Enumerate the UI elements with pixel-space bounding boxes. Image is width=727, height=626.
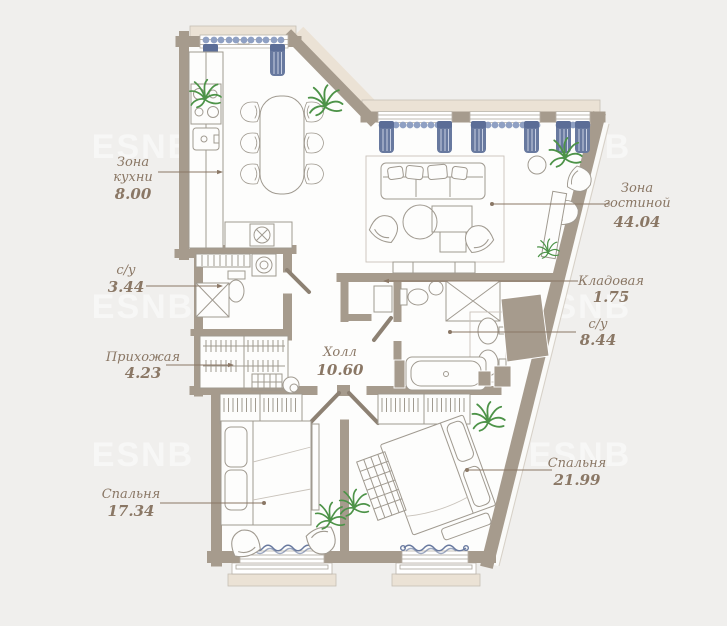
room-area: 8.00 — [115, 185, 152, 203]
room-name: Прихожая — [105, 350, 180, 365]
shower — [446, 281, 500, 321]
round-table — [528, 156, 546, 174]
floorplan-svg: ESNB ESNB ESNB ESNB ESNB ESNB — [0, 0, 727, 626]
room-area: 10.60 — [317, 361, 365, 379]
floorplan-page: ESNB ESNB ESNB ESNB ESNB ESNB — [0, 0, 727, 626]
bath-cabinet — [394, 360, 405, 388]
room-area: 4.23 — [125, 364, 162, 382]
bathtub — [406, 357, 486, 390]
room-name: Спальня — [102, 487, 161, 502]
room-name: Зона — [621, 181, 653, 196]
bath-stand — [494, 366, 511, 387]
room-area: 8.44 — [580, 331, 617, 349]
room-name: Холл — [322, 345, 357, 360]
laundry-basket — [478, 371, 491, 386]
washing-machine — [252, 254, 276, 276]
room-name: с/у — [588, 317, 608, 332]
kitchen-sink — [193, 128, 219, 150]
sofa — [381, 163, 485, 199]
bath-shelf — [196, 254, 250, 267]
bed — [221, 421, 311, 525]
tv-console — [393, 262, 475, 273]
shower — [196, 283, 229, 317]
room-name: Спальня — [548, 456, 607, 471]
room-name: Зона — [117, 155, 149, 170]
room-area: 3.44 — [108, 278, 145, 296]
wardrobe — [220, 394, 302, 424]
room-area: 44.04 — [614, 213, 661, 231]
toilet — [228, 271, 245, 302]
room-area: 21.99 — [553, 471, 602, 489]
kitchen-window-valance — [203, 37, 285, 44]
kitchen-appliance — [250, 224, 274, 246]
room-area: 1.75 — [593, 288, 630, 306]
room-name: кухни — [113, 170, 153, 185]
room-name: гостиной — [603, 196, 670, 211]
bath-closet — [501, 294, 549, 362]
toilet — [400, 289, 428, 305]
room-name: с/у — [116, 263, 136, 278]
room-name: Кладовая — [577, 274, 644, 289]
room-area: 17.34 — [108, 502, 155, 520]
entry-zone — [200, 336, 299, 393]
watermark-text: ESNB — [92, 436, 194, 474]
